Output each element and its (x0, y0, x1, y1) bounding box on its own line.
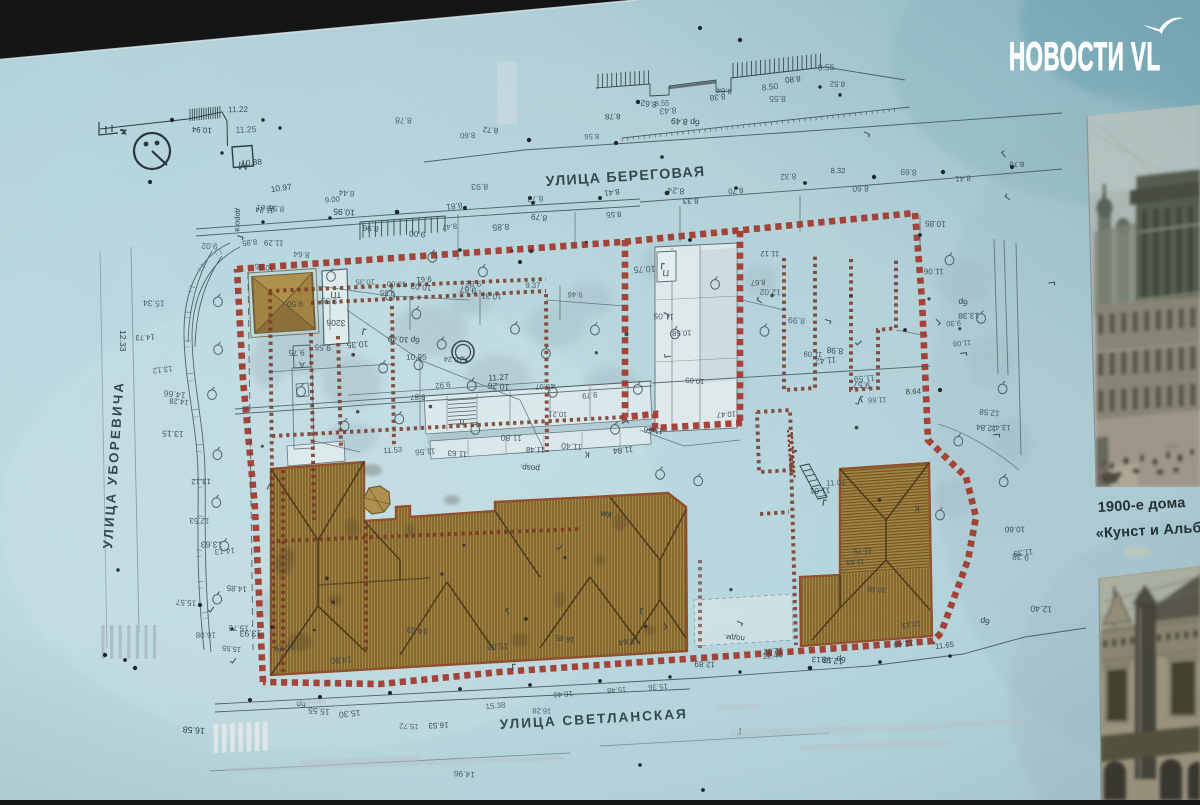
svg-text:НОВОСТИ VL: НОВОСТИ VL (1009, 34, 1161, 78)
